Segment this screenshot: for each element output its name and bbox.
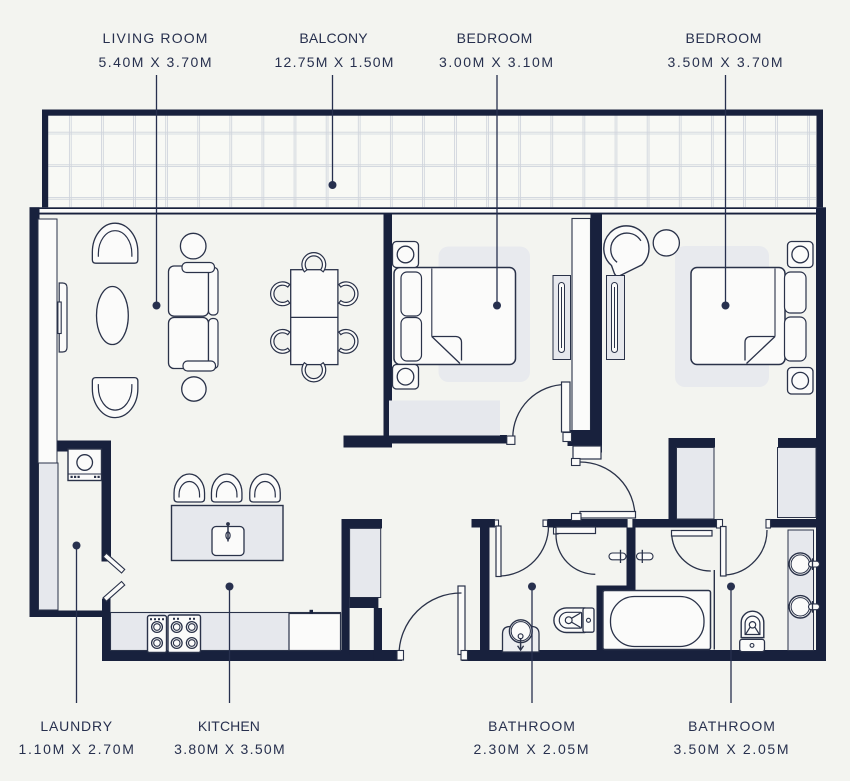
svg-text:BATHROOM: BATHROOM	[488, 718, 576, 734]
svg-text:12.75M X 1.50M: 12.75M X 1.50M	[275, 54, 395, 70]
svg-text:KITCHEN: KITCHEN	[198, 718, 260, 734]
svg-text:BEDROOM: BEDROOM	[686, 30, 763, 46]
svg-text:BEDROOM: BEDROOM	[457, 30, 533, 46]
svg-text:BALCONY: BALCONY	[299, 30, 368, 46]
svg-text:2.30M X 2.05M: 2.30M X 2.05M	[473, 741, 590, 757]
svg-text:LIVING ROOM: LIVING ROOM	[103, 30, 209, 46]
svg-text:3.00M X 3.10M: 3.00M X 3.10M	[439, 54, 555, 70]
svg-text:1.10M X 2.70M: 1.10M X 2.70M	[19, 741, 136, 757]
svg-text:3.50M X 2.05M: 3.50M X 2.05M	[673, 741, 790, 757]
svg-text:5.40M X 3.70M: 5.40M X 3.70M	[98, 54, 213, 70]
svg-text:LAUNDRY: LAUNDRY	[40, 718, 113, 734]
svg-text:3.80M X 3.50M: 3.80M X 3.50M	[174, 741, 286, 757]
svg-text:BATHROOM: BATHROOM	[688, 718, 776, 734]
svg-text:3.50M X 3.70M: 3.50M X 3.70M	[667, 54, 784, 70]
